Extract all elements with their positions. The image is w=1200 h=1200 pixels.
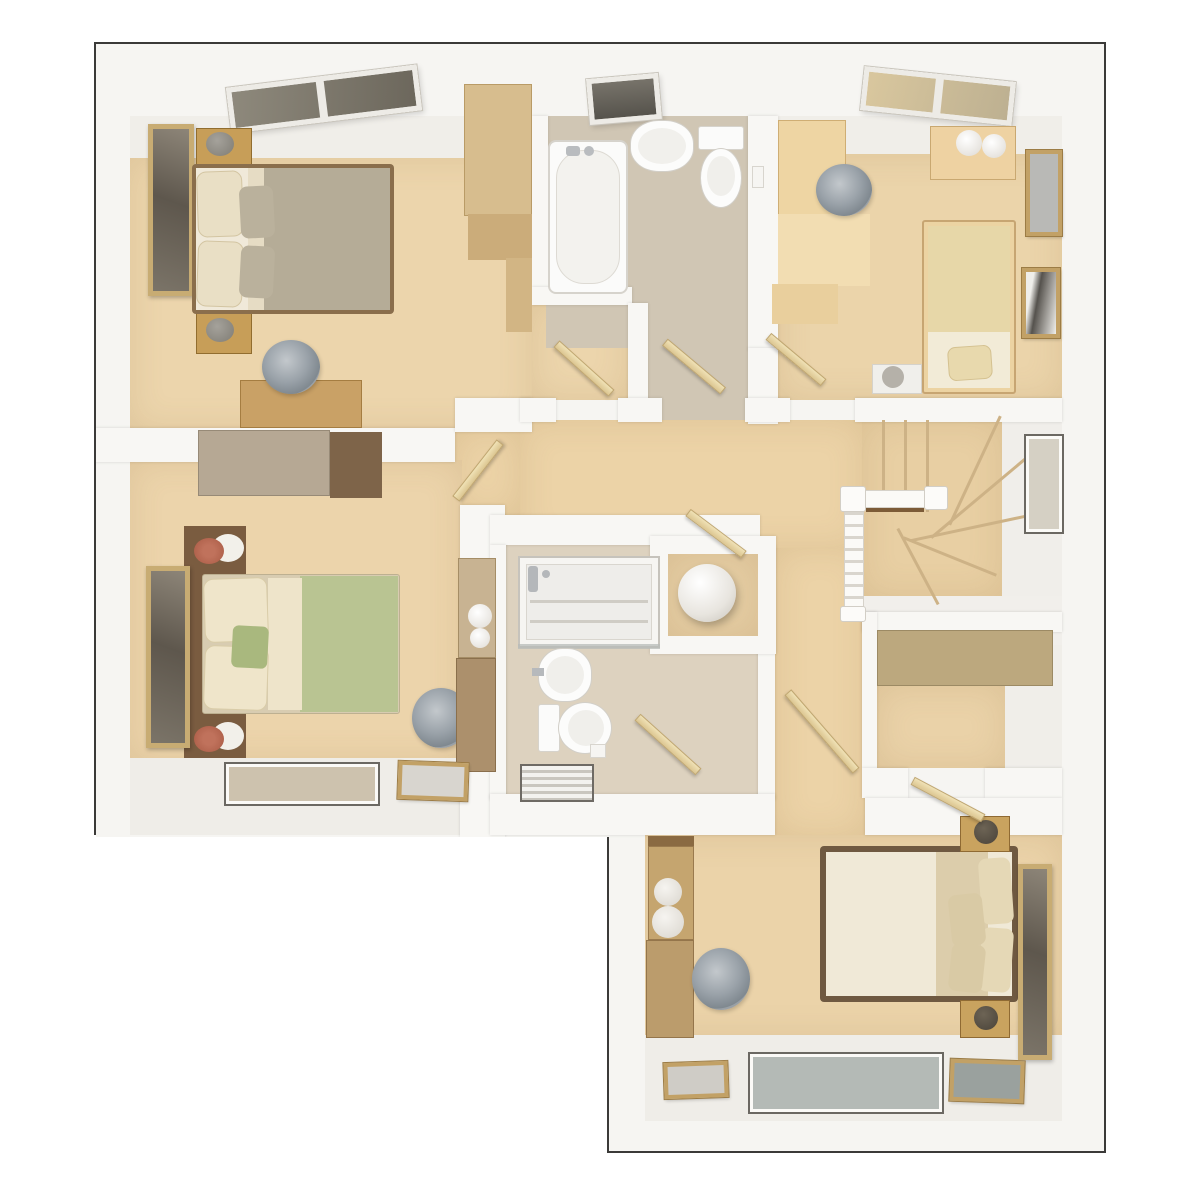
bath-tap-a: [566, 146, 580, 156]
bathtub-inner: [556, 150, 620, 284]
wall-landing-top-d: [855, 398, 1062, 422]
picture-frame-bedroom1-b: [949, 1059, 1024, 1104]
window-stairs: [1026, 436, 1062, 532]
floor-cupboard: [877, 686, 1005, 768]
wall-cupboard-bottom-a: [862, 768, 908, 798]
banister-newel-a: [840, 486, 866, 512]
pillow-bedroom3-3: [239, 185, 276, 239]
desk-bedroom4-low: [772, 284, 838, 324]
lamp-bedroom3-a: [206, 132, 234, 156]
mirror-bedroom1: [1018, 864, 1052, 1060]
wardrobe-bedroom3-tall: [464, 84, 532, 216]
lamp-bedroom1-a: [974, 820, 998, 844]
roof-window-bathroom: [586, 73, 662, 125]
wardrobe-bedroom2-a: [198, 430, 330, 496]
picture-frame-bedroom4-a: [1026, 150, 1062, 236]
bed-bedroom2-sheet: [268, 578, 302, 710]
wardrobe-bedroom3-side: [506, 258, 532, 332]
lamp-bedroom1-desk-b: [652, 906, 684, 938]
floor-plan-render: [0, 0, 1200, 1200]
paper-lantern: [678, 564, 736, 622]
pillow-bedroom4: [947, 345, 993, 382]
pillow-bedroom3-2: [196, 240, 244, 308]
tap-ensuite: [532, 668, 544, 676]
sink-bathroom-basin: [638, 128, 686, 164]
floor-landing-arm: [455, 430, 520, 515]
mirror-bedroom2: [146, 566, 190, 748]
wall-landing-top-b: [618, 398, 662, 422]
pillow-bedroom3-4: [239, 245, 276, 299]
desk-bedroom4-mid: [778, 214, 870, 286]
window-bedroom1: [750, 1054, 942, 1112]
pillow-bedroom2-accent: [231, 625, 269, 669]
worktop-cupboard: [877, 630, 1053, 686]
window-ensuite: [520, 764, 594, 802]
cabinet-bedroom2: [456, 658, 496, 772]
towel-roll-b: [470, 628, 490, 648]
ornament-bedroom4-b: [982, 134, 1006, 158]
lamp-bedroom1-desk-a: [654, 878, 682, 906]
shower-line-a: [530, 600, 648, 603]
toilet-roll-ensuite: [590, 744, 606, 758]
bath-tap-b: [584, 146, 594, 156]
picture-frame-bedroom4-b: [1022, 268, 1060, 338]
lamp-bedroom4: [882, 366, 904, 388]
wardrobe-bedroom3-mid: [468, 214, 532, 260]
ornament-bedroom4-a: [956, 130, 982, 156]
wall-cupboard-left: [862, 612, 877, 768]
lamp-bedroom3-b: [206, 318, 234, 342]
flower-bedroom2-a: [194, 538, 224, 564]
bed-bedroom4-duvet: [928, 226, 1010, 334]
pillow-bedroom1-3: [947, 892, 986, 947]
mirror-bedroom3: [148, 124, 194, 296]
shower-line-b: [530, 620, 648, 623]
banister-newel-b: [924, 486, 948, 510]
wall-cupboard-top: [862, 612, 1062, 632]
chair-bedroom4: [816, 164, 872, 216]
wall-landing-top-a: [520, 398, 556, 422]
dresser-bedroom1-lower: [646, 940, 694, 1038]
pillow-bedroom3-1: [196, 170, 244, 238]
lamp-bedroom1-b: [974, 1006, 998, 1030]
bed-bedroom2-duvet: [300, 576, 398, 712]
chair-bedroom3: [262, 340, 320, 394]
toilet-bathroom-tank: [698, 126, 744, 150]
toilet-ensuite-tank: [538, 704, 560, 752]
floor-plan: [0, 0, 1200, 1200]
shower-glass: [518, 644, 660, 649]
wall-landing-top-c: [745, 398, 790, 422]
towel-roll-a: [468, 604, 492, 628]
banister-newel-c: [840, 606, 866, 622]
toilet-ensuite-seat: [568, 710, 604, 746]
toilet-roll-holder: [752, 166, 764, 188]
picture-frame-bedroom2: [397, 761, 468, 801]
chair-bedroom1: [692, 948, 750, 1010]
picture-frame-bedroom1-a: [663, 1061, 728, 1099]
wall-cupboard-bottom-b: [985, 768, 1062, 798]
wall-nook-right: [628, 303, 648, 400]
sink-ensuite-basin: [546, 656, 584, 694]
shower-head: [528, 566, 538, 592]
window-bedroom2: [226, 764, 378, 804]
wardrobe-bedroom2-b: [330, 432, 382, 498]
pillow-bedroom1-4: [948, 942, 987, 993]
shower-control: [542, 570, 550, 578]
dresser-bedroom1-top: [648, 836, 694, 846]
wall-bathroom-left: [532, 116, 548, 303]
flower-bedroom2-b: [194, 726, 224, 752]
toilet-bathroom-seat: [707, 156, 735, 196]
bed-bedroom3-duvet: [262, 168, 390, 310]
